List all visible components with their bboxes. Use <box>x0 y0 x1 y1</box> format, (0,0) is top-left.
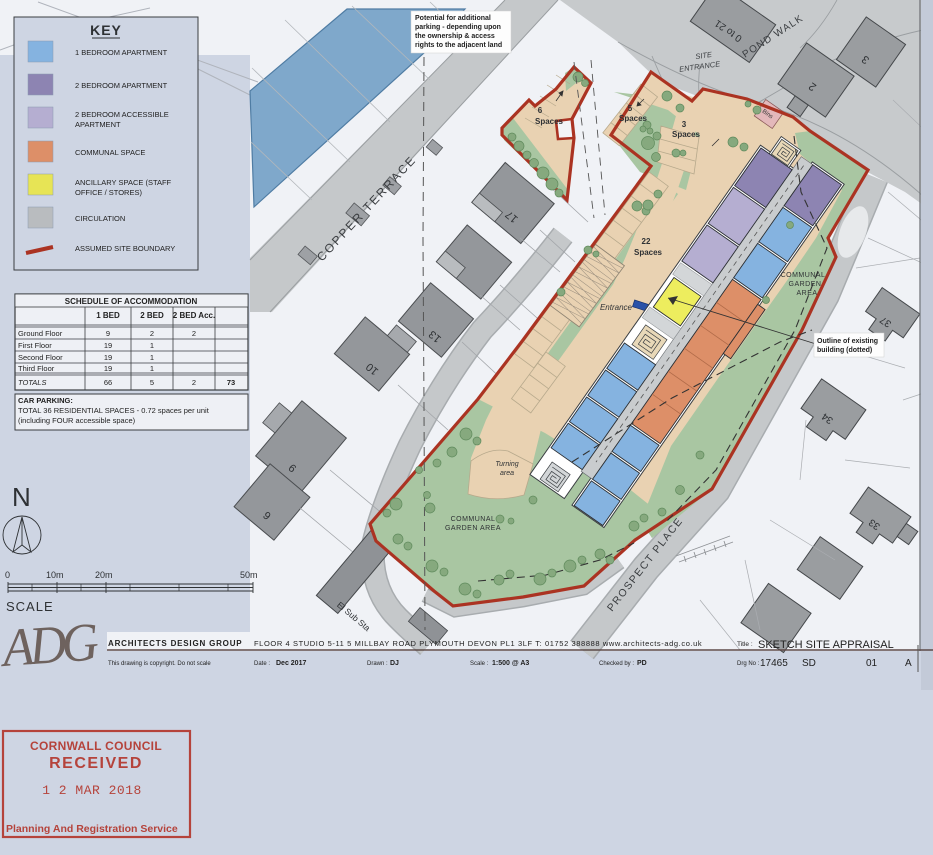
svg-text:Potential for additional: Potential for additional <box>415 15 491 22</box>
svg-text:RECEIVED: RECEIVED <box>49 755 143 772</box>
svg-text:Spaces: Spaces <box>619 114 648 123</box>
svg-text:DJ: DJ <box>390 660 399 667</box>
svg-text:(including FOUR accessible spa: (including FOUR accessible space) <box>18 416 136 425</box>
svg-text:Checked by :: Checked by : <box>599 661 634 667</box>
svg-text:Drg No :: Drg No : <box>737 661 760 667</box>
svg-text:19: 19 <box>104 364 112 373</box>
svg-text:1: 1 <box>150 364 154 373</box>
svg-text:SD: SD <box>802 658 816 669</box>
svg-text:19: 19 <box>104 353 112 362</box>
svg-text:1 BED: 1 BED <box>96 311 120 320</box>
svg-text:SKETCH SITE APPRAISAL: SKETCH SITE APPRAISAL <box>758 639 894 651</box>
svg-text:1:500 @ A3: 1:500 @ A3 <box>492 660 529 667</box>
svg-text:Date :: Date : <box>254 661 270 667</box>
svg-text:rights to the adjacent land: rights to the adjacent land <box>415 42 502 49</box>
svg-text:the ownership & access: the ownership & access <box>415 33 495 40</box>
svg-text:Spaces: Spaces <box>634 248 663 257</box>
svg-text:6: 6 <box>538 106 543 115</box>
svg-text:2 BEDROOM ACCESSIBLE: 2 BEDROOM ACCESSIBLE <box>75 110 169 119</box>
svg-text:Title :: Title : <box>737 641 753 648</box>
svg-text:Second Floor: Second Floor <box>18 353 63 362</box>
svg-text:2 BED: 2 BED <box>140 311 164 320</box>
svg-text:building (dotted): building (dotted) <box>817 347 872 354</box>
svg-text:2: 2 <box>150 329 154 338</box>
svg-text:2 BED Acc.: 2 BED Acc. <box>173 311 215 320</box>
svg-text:20m: 20m <box>95 570 113 580</box>
svg-text:Spaces: Spaces <box>535 117 564 126</box>
svg-text:AREA: AREA <box>796 290 817 297</box>
svg-text:9: 9 <box>106 329 110 338</box>
svg-text:0: 0 <box>5 570 10 580</box>
svg-text:1: 1 <box>150 341 154 350</box>
svg-text:Spaces: Spaces <box>672 130 701 139</box>
svg-text:A: A <box>905 658 912 669</box>
svg-text:area: area <box>500 470 514 477</box>
svg-text:3: 3 <box>682 120 687 129</box>
svg-text:Scale :: Scale : <box>470 661 489 667</box>
svg-text:Outline of existing: Outline of existing <box>817 338 878 345</box>
svg-text:73: 73 <box>227 378 235 387</box>
svg-text:22: 22 <box>642 237 651 246</box>
svg-text:1 2 MAR 2018: 1 2 MAR 2018 <box>42 783 142 798</box>
svg-text:Dec 2017: Dec 2017 <box>276 660 306 667</box>
svg-text:SCALE: SCALE <box>6 599 54 614</box>
svg-text:TOTALS: TOTALS <box>18 378 46 387</box>
svg-text:Drawn :: Drawn : <box>367 661 388 667</box>
svg-text:CIRCULATION: CIRCULATION <box>75 214 125 223</box>
svg-text:01: 01 <box>866 658 878 669</box>
svg-text:1: 1 <box>150 353 154 362</box>
svg-text:ARCHITECTS DESIGN GROUP: ARCHITECTS DESIGN GROUP <box>108 639 242 648</box>
svg-text:19: 19 <box>104 341 112 350</box>
svg-text:2: 2 <box>192 329 196 338</box>
svg-text:parking - depending upon: parking - depending upon <box>415 24 501 31</box>
svg-text:5: 5 <box>150 378 154 387</box>
svg-text:Turning: Turning <box>495 461 518 468</box>
svg-text:PD: PD <box>637 660 647 667</box>
svg-text:COMMUNAL: COMMUNAL <box>781 272 826 279</box>
svg-text:N: N <box>12 482 31 512</box>
svg-text:GARDEN AREA: GARDEN AREA <box>445 525 501 532</box>
svg-text:ADG: ADG <box>0 612 100 678</box>
svg-text:CAR PARKING:: CAR PARKING: <box>18 396 73 405</box>
svg-text:TOTAL 36 RESIDENTIAL SPACES -: TOTAL 36 RESIDENTIAL SPACES - 0.72 space… <box>18 406 210 415</box>
svg-text:Entrance: Entrance <box>600 303 633 312</box>
svg-text:FLOOR 4 STUDIO 5-11 5 MI: FLOOR 4 STUDIO 5-11 5 MILLBAY ROAD PLYMO… <box>254 639 702 648</box>
svg-text:APARTMENT: APARTMENT <box>75 120 121 129</box>
svg-text:KEY: KEY <box>90 22 122 38</box>
svg-text:COMMUNAL SPACE: COMMUNAL SPACE <box>75 148 145 157</box>
svg-text:Planning And Registration Serv: Planning And Registration Service <box>6 823 178 835</box>
svg-text:ASSUMED SITE BOUNDARY: ASSUMED SITE BOUNDARY <box>75 244 175 253</box>
svg-text:OFFICE / STORES): OFFICE / STORES) <box>75 188 142 197</box>
svg-text:5: 5 <box>628 104 633 113</box>
svg-text:Third Floor: Third Floor <box>18 364 55 373</box>
svg-text:First Floor: First Floor <box>18 341 52 350</box>
svg-text:2: 2 <box>192 378 196 387</box>
svg-text:66: 66 <box>104 378 112 387</box>
svg-text:1 BEDROOM APARTMENT: 1 BEDROOM APARTMENT <box>75 48 168 57</box>
svg-text:This drawing is copyright. Do: This drawing is copyright. Do not scale <box>108 661 211 667</box>
svg-text:2 BEDROOM APARTMENT: 2 BEDROOM APARTMENT <box>75 81 168 90</box>
svg-text:50m: 50m <box>240 570 258 580</box>
svg-text:GARDEN: GARDEN <box>789 281 822 288</box>
svg-text:CORNWALL COUNCIL: CORNWALL COUNCIL <box>30 739 162 753</box>
svg-text:COMMUNAL: COMMUNAL <box>451 516 496 523</box>
svg-text:Ground Floor: Ground Floor <box>18 329 63 338</box>
svg-text:17465: 17465 <box>760 658 788 669</box>
svg-text:10m: 10m <box>46 570 64 580</box>
svg-text:ANCILLARY SPACE (STAFF: ANCILLARY SPACE (STAFF <box>75 178 172 187</box>
svg-text:SCHEDULE OF ACCOMMODATION: SCHEDULE OF ACCOMMODATION <box>65 297 198 306</box>
